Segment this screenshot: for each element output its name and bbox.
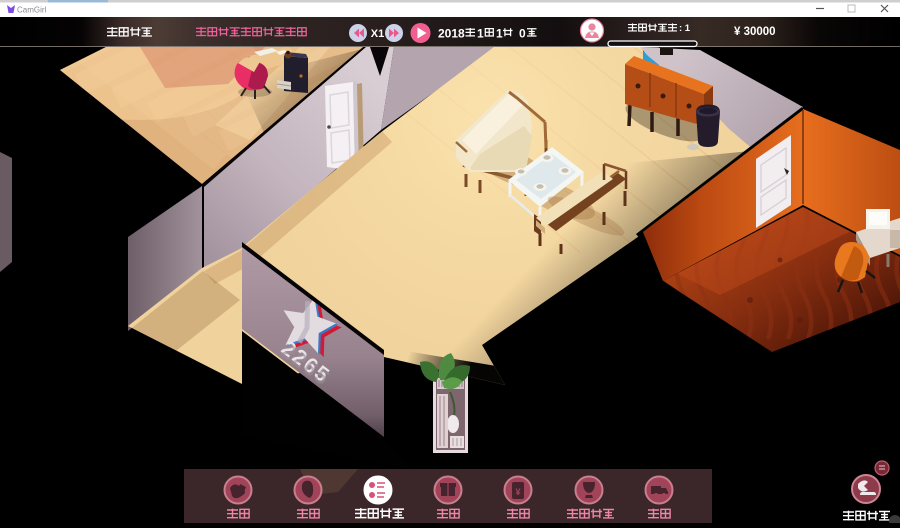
svg-text:1: 1 [496, 27, 503, 41]
svg-text:¥: ¥ [515, 487, 520, 497]
svg-text:0: 0 [519, 27, 526, 41]
svg-text:: 1: : 1 [679, 23, 691, 34]
svg-text:CamGirl: CamGirl [17, 6, 47, 15]
svg-text:1: 1 [477, 27, 484, 41]
svg-text:X1: X1 [371, 28, 384, 40]
svg-text:2018: 2018 [438, 27, 465, 41]
svg-text:¥ 30000: ¥ 30000 [734, 26, 776, 38]
